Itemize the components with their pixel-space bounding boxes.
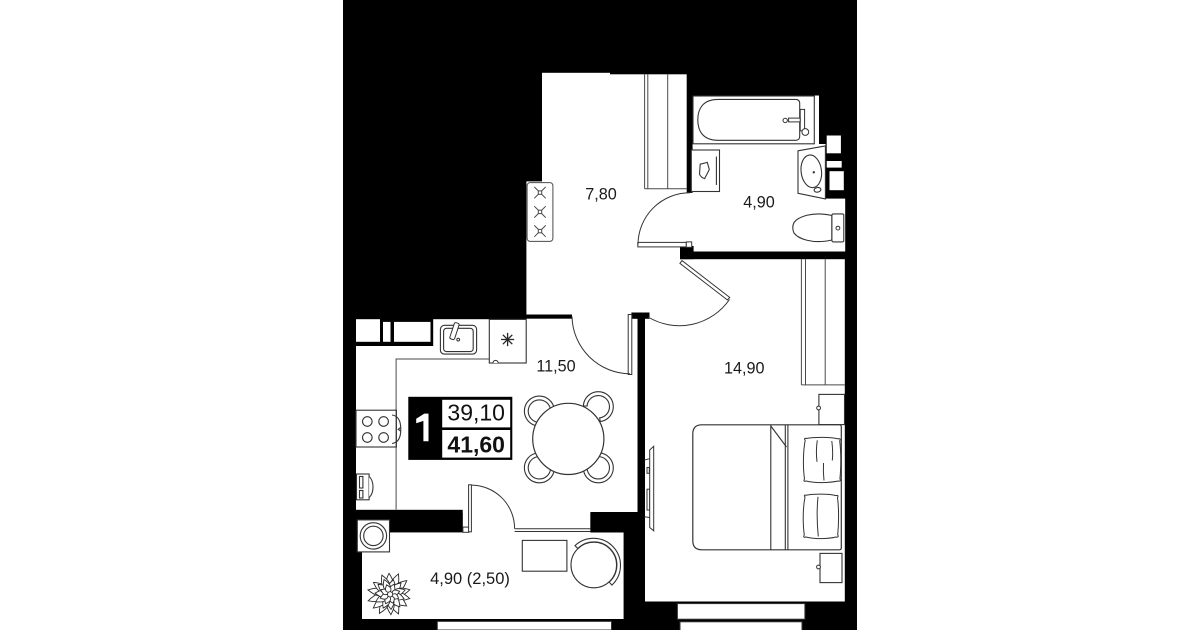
svg-text:7,80: 7,80: [585, 185, 617, 203]
svg-text:14,90: 14,90: [724, 360, 765, 378]
svg-text:41,60: 41,60: [447, 432, 505, 458]
svg-text:4,90 (2,50): 4,90 (2,50): [430, 570, 510, 588]
svg-text:4,90: 4,90: [743, 193, 775, 211]
svg-text:11,50: 11,50: [536, 357, 575, 375]
svg-text:39,10: 39,10: [447, 400, 505, 426]
